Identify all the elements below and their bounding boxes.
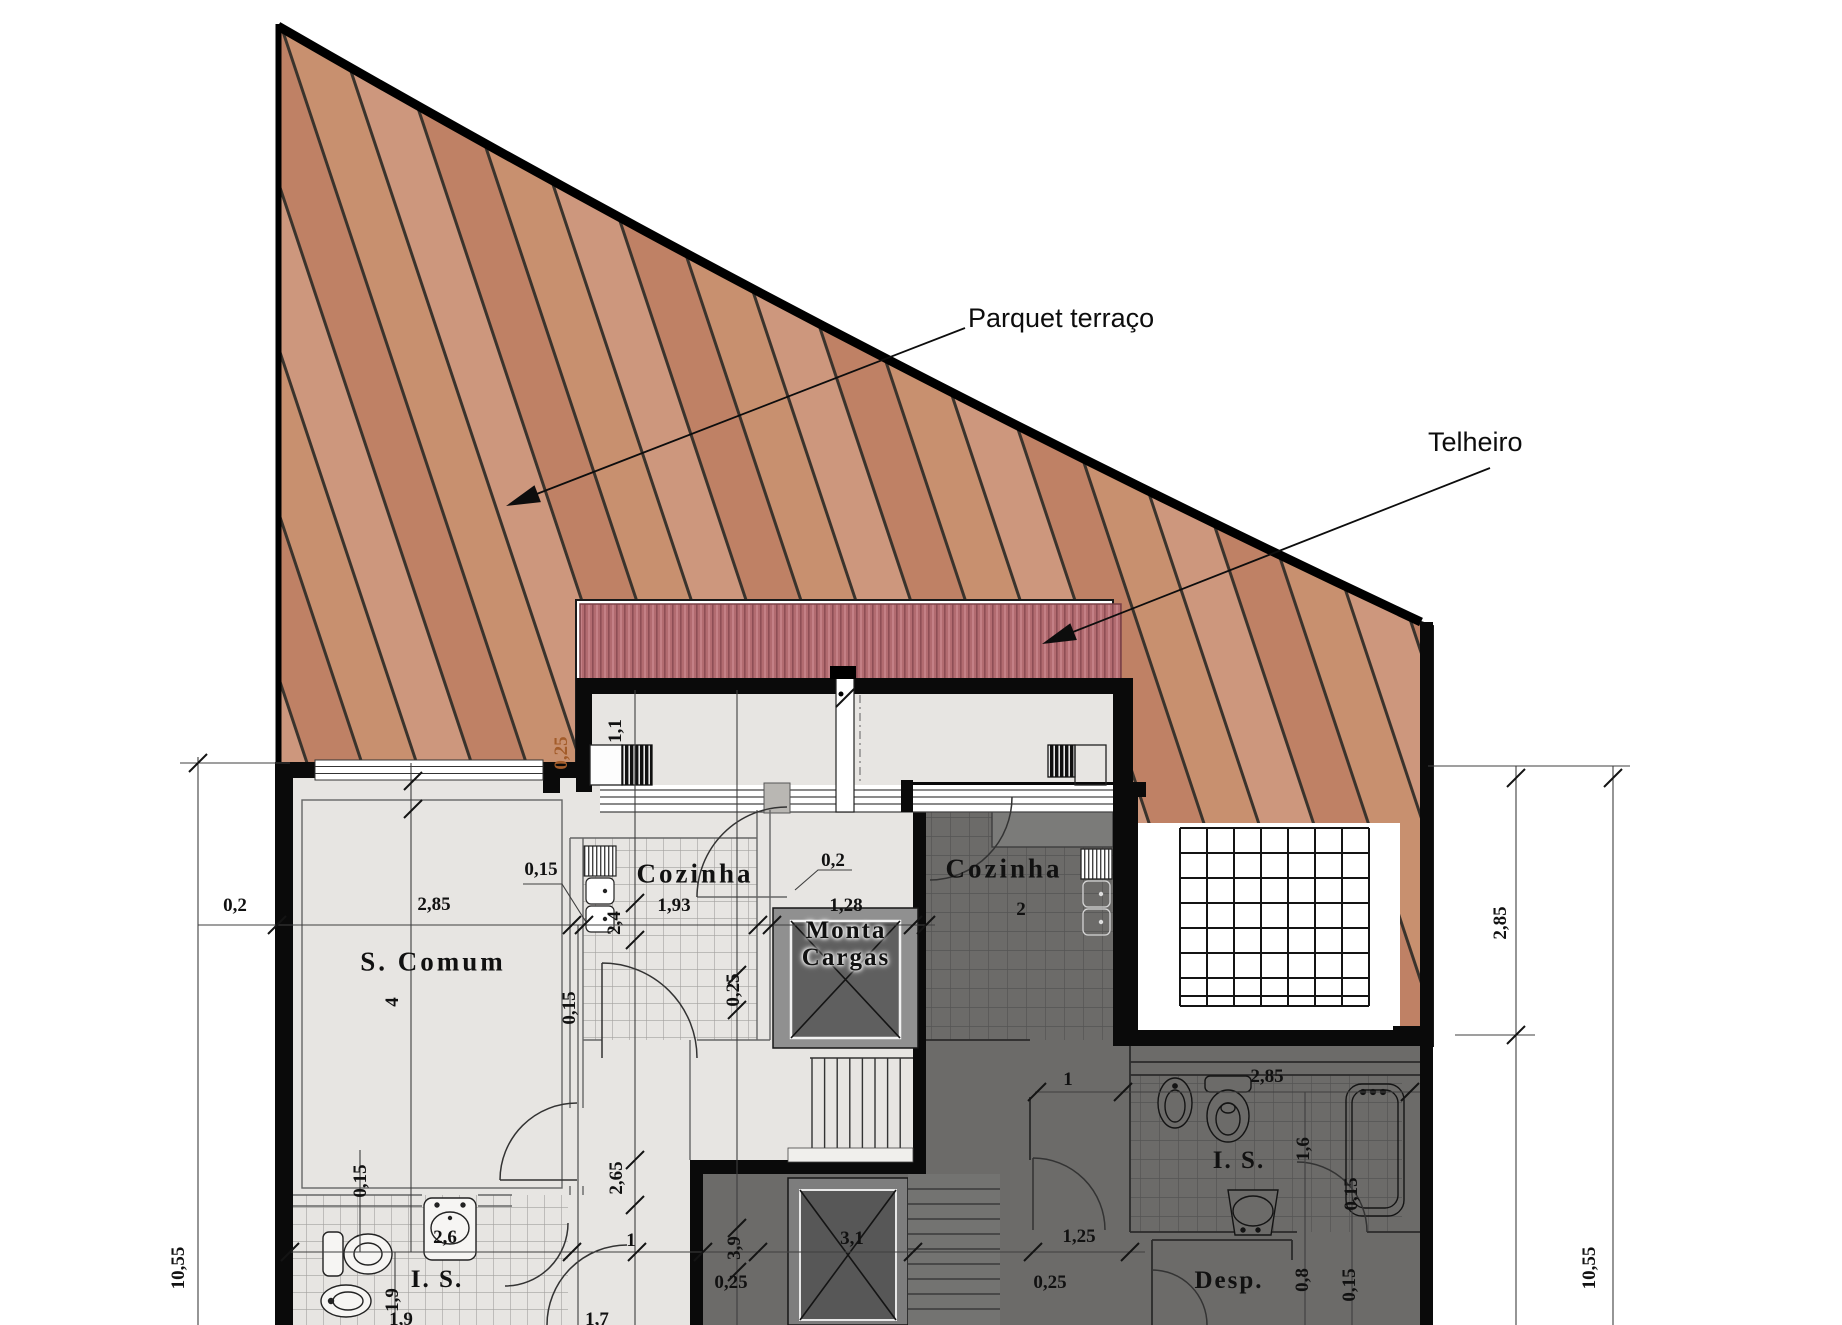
dimension-label: 0,8 bbox=[1292, 1268, 1314, 1292]
room-label-is-left: I. S. bbox=[411, 1266, 463, 1294]
appliance-box-left bbox=[622, 745, 652, 785]
dimension-label: 0,25 bbox=[714, 1272, 747, 1294]
room-number-s-comum: 4 bbox=[382, 997, 404, 1007]
dimension-label: 0,15 bbox=[350, 1164, 372, 1197]
dimension-label: 0,15 bbox=[1339, 1268, 1361, 1301]
appliance-box-right bbox=[1048, 745, 1075, 777]
stairs-lower bbox=[908, 1174, 1000, 1325]
dimension-label: 0,25 bbox=[1033, 1272, 1066, 1294]
dimension-label: 0,25 bbox=[723, 973, 745, 1006]
dimension-label: 2,4 bbox=[604, 911, 626, 935]
dimension-label: 3,9 bbox=[724, 1236, 746, 1260]
dimension-label: 1 bbox=[626, 1230, 636, 1252]
dimension-label: 1,1 bbox=[605, 719, 627, 743]
dimension-label: 0,2 bbox=[821, 850, 845, 872]
dimension-label: 0,15 bbox=[524, 859, 557, 881]
dimension-label: 0,15 bbox=[559, 991, 581, 1024]
floor-plan-drawing bbox=[0, 0, 1842, 1325]
toilet bbox=[1207, 1090, 1249, 1142]
dimension-label: 2,6 bbox=[433, 1227, 457, 1249]
dimension-label: 2,65 bbox=[606, 1161, 628, 1194]
callout-parquet-terraco: Parquet terraço bbox=[968, 303, 1154, 334]
dimension-label: 2,85 bbox=[1490, 906, 1512, 939]
room-label-cozinha-left: Cozinha bbox=[636, 859, 753, 890]
dimension-label: 1,6 bbox=[1293, 1137, 1315, 1161]
window-top-left bbox=[315, 760, 543, 780]
courtyard-grid bbox=[1138, 823, 1400, 1032]
dimension-label-overall-left: 10,55 bbox=[168, 1247, 190, 1290]
callout-telheiro: Telheiro bbox=[1428, 427, 1523, 458]
room-number-cozinha-right: 2 bbox=[1016, 899, 1026, 921]
toilet bbox=[323, 1232, 343, 1276]
dimension-label: 1,25 bbox=[1062, 1226, 1095, 1248]
floor-plan-canvas: Parquet terraço Telheiro S. Comum 4 Cozi… bbox=[0, 0, 1842, 1325]
dimension-label: 2,85 bbox=[1250, 1066, 1283, 1088]
dimension-label-wall: 0,25 bbox=[551, 736, 573, 769]
room-label-desp: Desp. bbox=[1194, 1267, 1263, 1295]
room-label-is-right: I. S. bbox=[1213, 1147, 1265, 1175]
dimension-label: 1,9 bbox=[382, 1288, 404, 1312]
dimension-label: 1 bbox=[1063, 1069, 1073, 1091]
washbasin bbox=[1228, 1190, 1278, 1235]
dimension-label-overall-right: 10,55 bbox=[1579, 1247, 1601, 1290]
room-label-monta: Monta bbox=[806, 917, 887, 945]
room-label-cargas: Cargas bbox=[802, 944, 890, 972]
room-label-s-comum: S. Comum bbox=[360, 947, 506, 978]
dimension-label: 0,15 bbox=[1341, 1177, 1363, 1210]
dimension-label: 2,85 bbox=[417, 894, 450, 916]
dimension-label: 1,7 bbox=[585, 1309, 609, 1325]
dimension-label: 3,1 bbox=[840, 1228, 864, 1250]
dimension-label: 1,28 bbox=[829, 895, 862, 917]
dimension-label: 0,2 bbox=[223, 895, 247, 917]
room-label-cozinha-right: Cozinha bbox=[945, 854, 1062, 885]
dimension-label: 1,93 bbox=[657, 895, 690, 917]
